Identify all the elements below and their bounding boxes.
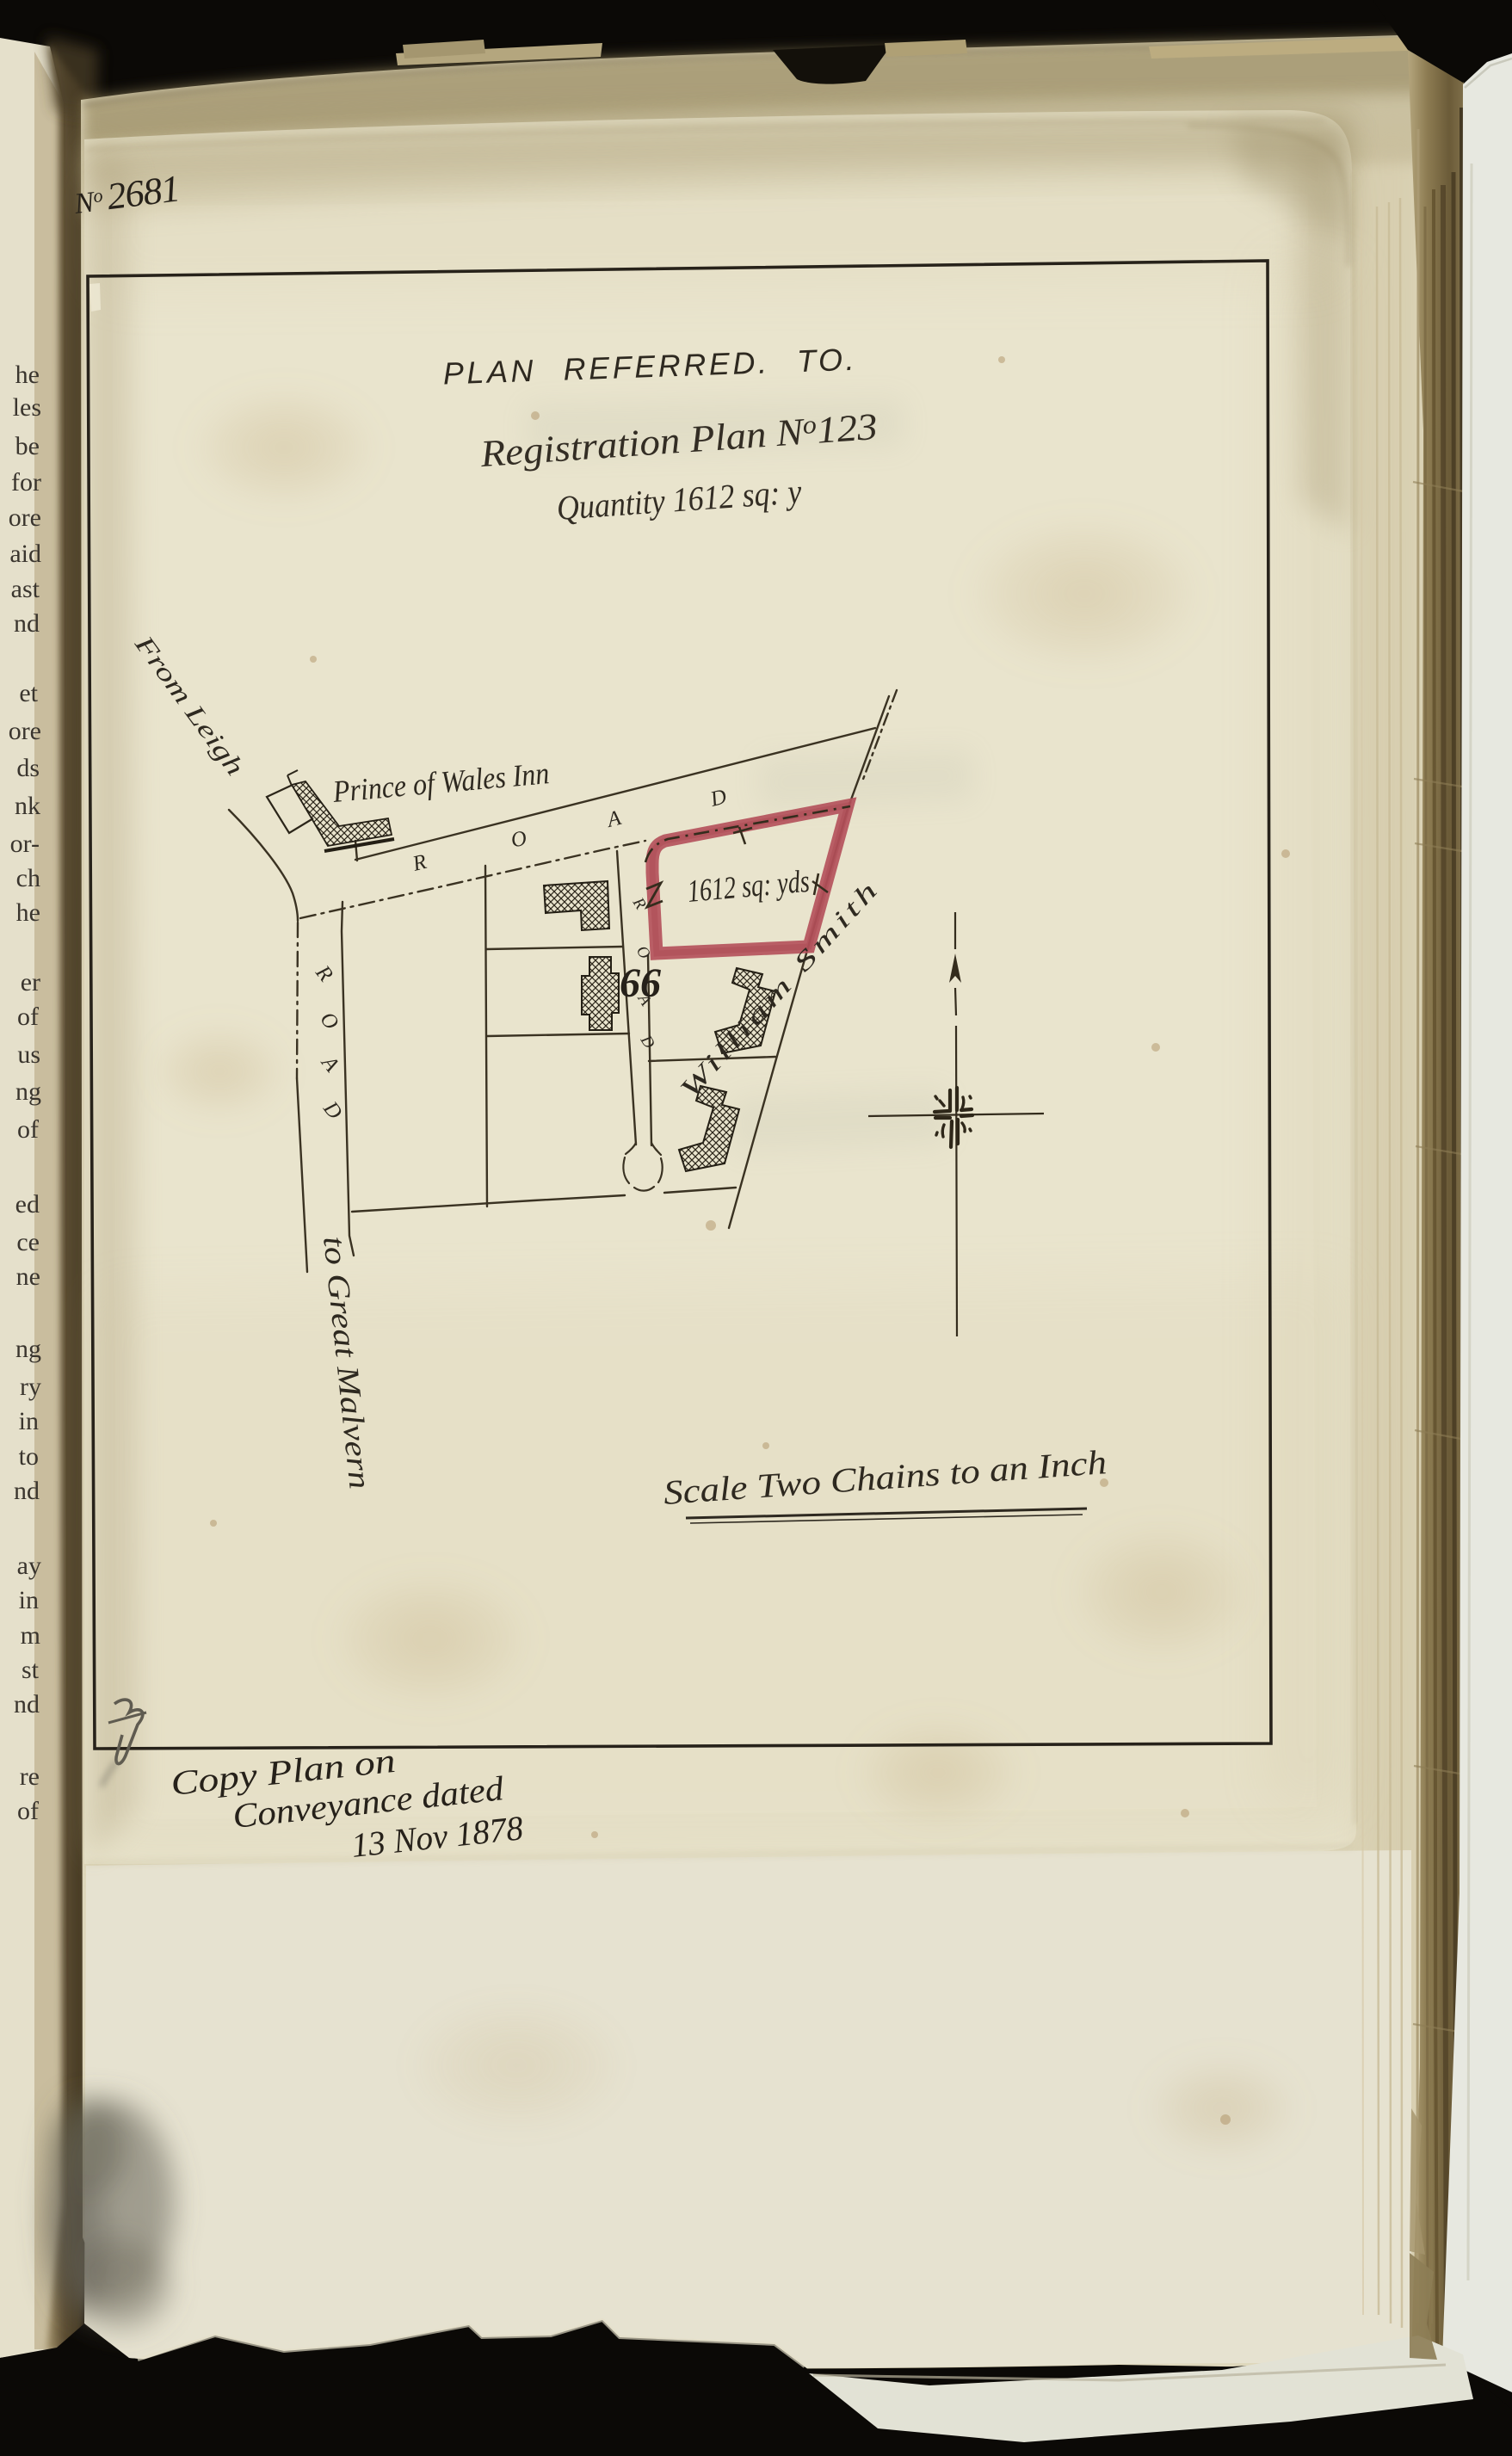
svg-text:to: to <box>19 1442 39 1471</box>
svg-text:nd: nd <box>14 1690 40 1719</box>
svg-text:he: he <box>15 361 40 389</box>
svg-text:66: 66 <box>620 960 661 1006</box>
svg-text:ng: ng <box>15 1335 41 1363</box>
svg-text:ay: ay <box>17 1552 41 1580</box>
svg-text:us: us <box>17 1040 40 1069</box>
svg-text:ce: ce <box>16 1228 40 1256</box>
svg-text:ne: ne <box>16 1262 40 1291</box>
svg-text:for: for <box>11 468 41 497</box>
svg-text:st: st <box>22 1656 40 1684</box>
svg-text:ry: ry <box>20 1373 41 1401</box>
svg-text:les: les <box>13 393 41 422</box>
svg-text:of: of <box>17 1003 39 1031</box>
svg-text:ore: ore <box>9 503 41 532</box>
svg-text:ed: ed <box>15 1190 40 1219</box>
svg-text:nd: nd <box>14 609 40 638</box>
svg-text:ds: ds <box>16 754 40 782</box>
svg-text:er: er <box>21 968 40 997</box>
svg-text:ast: ast <box>11 575 40 603</box>
svg-text:of: of <box>17 1797 39 1825</box>
svg-text:of: of <box>17 1115 39 1144</box>
svg-text:ng: ng <box>15 1077 41 1106</box>
svg-text:m: m <box>21 1621 40 1650</box>
svg-text:nd: nd <box>14 1477 40 1505</box>
svg-text:in: in <box>19 1407 39 1435</box>
svg-text:ch: ch <box>16 864 40 892</box>
svg-text:he: he <box>16 898 40 927</box>
svg-text:ore: ore <box>9 717 41 745</box>
svg-text:be: be <box>15 432 40 460</box>
svg-text:aid: aid <box>9 540 41 568</box>
svg-text:or-: or- <box>10 830 40 858</box>
svg-text:re: re <box>20 1762 40 1791</box>
svg-text:in: in <box>19 1586 39 1614</box>
svg-text:et: et <box>19 679 38 707</box>
svg-text:nk: nk <box>15 792 40 820</box>
